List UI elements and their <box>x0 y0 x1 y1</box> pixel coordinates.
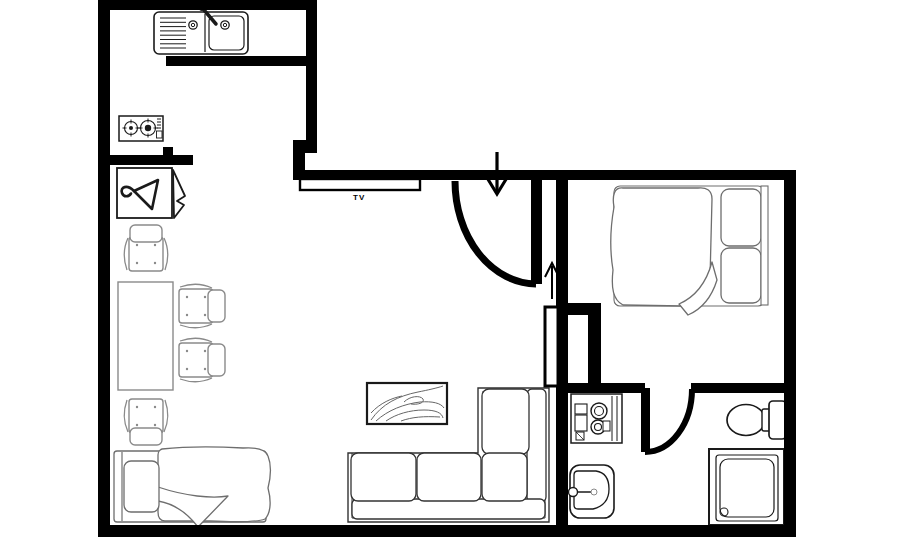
dining-chair-icon <box>179 284 225 328</box>
cooktop-icon <box>119 116 163 141</box>
double-bed-icon <box>611 186 768 315</box>
wardrobe-hanger-icon <box>117 168 185 218</box>
toilet-icon <box>727 401 786 439</box>
bathroom-door-swing-icon <box>641 388 692 452</box>
floor-plan-canvas: TV <box>0 0 900 537</box>
washbasin-icon <box>569 465 615 518</box>
shaft-interior <box>568 315 588 383</box>
single-bed-icon <box>114 447 270 527</box>
dining-chair-icon <box>124 399 168 445</box>
dining-table-icon <box>118 282 173 390</box>
rug-icon <box>367 383 447 424</box>
washing-machine-icon <box>571 394 622 443</box>
tv-icon: TV <box>300 179 420 202</box>
entry-door-leaf <box>531 178 542 284</box>
dining-chair-icon <box>179 338 225 382</box>
tv-label: TV <box>353 193 365 202</box>
bathroom-door-leaf <box>641 388 650 452</box>
dining-chair-icon <box>124 225 168 271</box>
shower-icon <box>709 449 784 525</box>
kitchen-sink-icon <box>154 6 248 54</box>
sliding-door-leaf-icon <box>545 307 558 386</box>
